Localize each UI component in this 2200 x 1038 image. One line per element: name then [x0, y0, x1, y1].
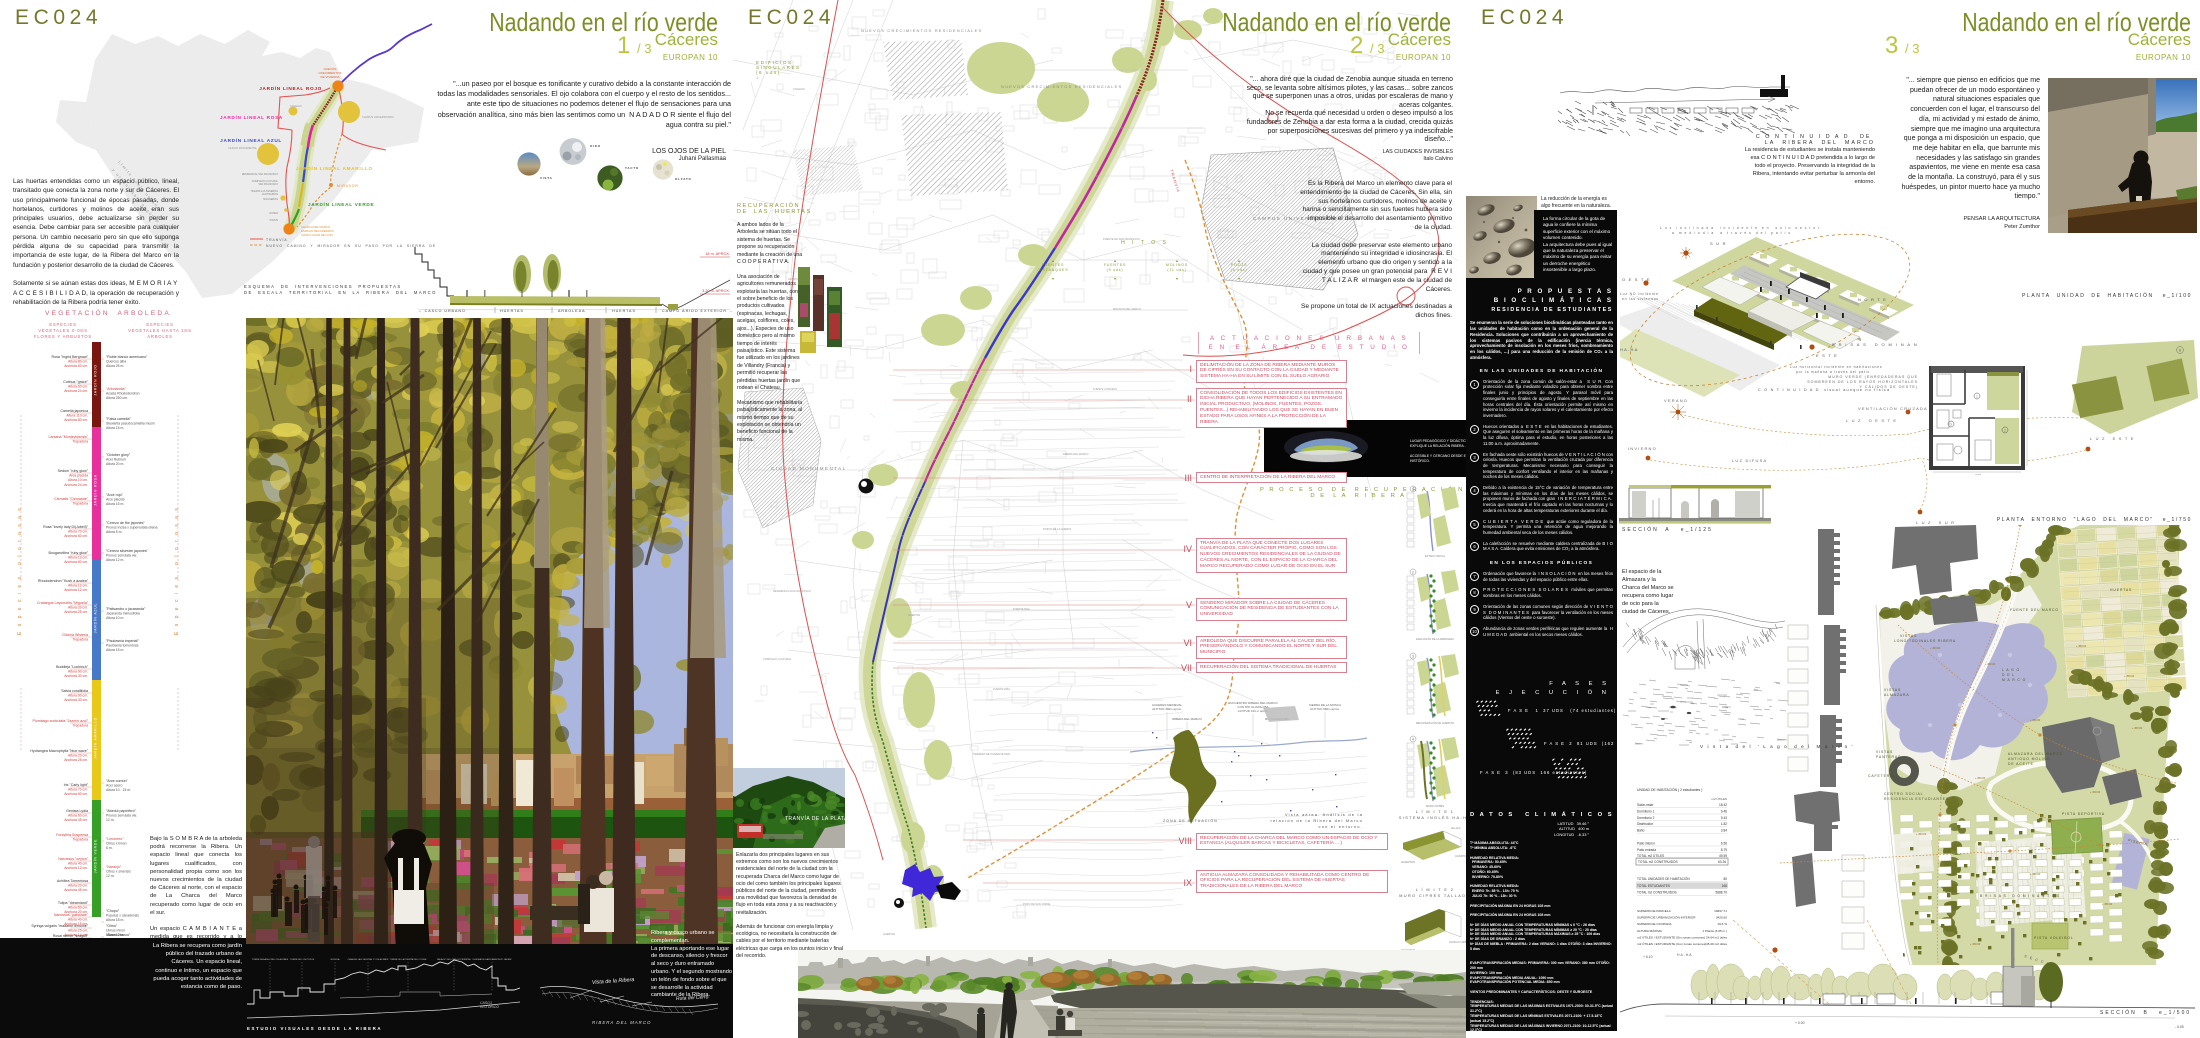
svg-text:Anchura 25 cm.: Anchura 25 cm.	[64, 610, 88, 614]
svg-text:Anchura 45 cm.: Anchura 45 cm.	[64, 888, 88, 892]
svg-text:JARDÍN LINEAL AZUL: JARDÍN LINEAL AZUL	[220, 136, 282, 143]
svg-text:"October glory": "October glory"	[106, 453, 131, 457]
svg-text:JARDÍN LINEAL AMARILLO: JARDÍN LINEAL AMARILLO	[296, 164, 373, 171]
svg-text:"Falsa camelia": "Falsa camelia"	[106, 417, 131, 421]
svg-text:Trepadora: Trepadora	[72, 502, 88, 506]
svg-text:TRANVÍA: TRANVÍA	[1169, 169, 1181, 194]
svg-text:CAFETERÍA: CAFETERÍA	[1868, 774, 1895, 778]
svg-text:Anchura 45 cm.: Anchura 45 cm.	[64, 818, 88, 822]
svg-text:VERANO: VERANO	[1664, 398, 1688, 403]
svg-text:TRANVÍA DE LA PLATA: TRANVÍA DE LA PLATA	[785, 815, 845, 822]
svg-text:9.43: 9.43	[1721, 816, 1727, 820]
svg-text:Vista aérea. Análisis de la: Vista aérea. Análisis de la	[1285, 812, 1363, 817]
svg-text:EJECUCIÓN DE LA ARBOLEDA: EJECUCIÓN DE LA ARBOLEDA	[1416, 636, 1454, 641]
svg-text:RESIDENCIA SAN FRANCISCO: RESIDENCIA SAN FRANCISCO	[773, 589, 811, 593]
svg-text:HA-HA: HA-HA	[1677, 953, 1693, 957]
svg-text:ESTADO INICIAL: ESTADO INICIAL	[1425, 554, 1446, 558]
svg-text:"Abedul papírifero": "Abedul papírifero"	[106, 809, 137, 813]
svg-text:+ 450.00: + 450.00	[2030, 872, 2041, 876]
svg-text:con el entorno.: con el entorno.	[1319, 824, 1363, 829]
svg-text:NUEVOS CRECIMIENTOS RESIDENC: NUEVOS CRECIMIENTOS RESIDENCIALES	[861, 28, 982, 33]
svg-text:D E L: D E L	[2002, 673, 2015, 677]
svg-text:Altura 5 m.: Altura 5 m.	[106, 530, 122, 534]
svg-text:RESIDENCIA ESTUDIANTES: RESIDENCIA ESTUDIANTES	[1884, 797, 1949, 801]
svg-text:BODUJA: BODUJA	[331, 958, 340, 961]
svg-text:5688.70: 5688.70	[1715, 891, 1727, 895]
svg-text:▼: ▼	[1113, 277, 1117, 281]
svg-text:Clematis "Clematide": Clematis "Clematide"	[54, 497, 88, 501]
svg-text:HA-HA: HA-HA	[1451, 826, 1460, 830]
svg-text:3425.60: 3425.60	[1716, 916, 1727, 920]
svg-text:RIBERA DEL MARCO: RIBERA DEL MARCO	[1172, 717, 1202, 721]
svg-text:JARDÍN LINEAL VERDE: JARDÍN LINEAL VERDE	[308, 200, 374, 207]
svg-text:Altura 90 cm.: Altura 90 cm.	[68, 670, 88, 674]
svg-text:VEGETALES HASTA 18m: VEGETALES HASTA 18m	[128, 328, 192, 333]
svg-text:Achillea Tomentosa: Achillea Tomentosa	[57, 879, 88, 883]
svg-text:Stewartia pseudocamellia mosin: Stewartia pseudocamellia mosin	[106, 422, 155, 426]
svg-text:ESPECIES: ESPECIES	[49, 322, 76, 327]
svg-text:"Arbolandia": "Arbolandia"	[106, 387, 126, 391]
svg-text:Prunus incisa x supervulata ol: Prunus incisa x supervulata oliana	[106, 526, 158, 530]
svg-text:+ 450.00: + 450.00	[2090, 790, 2101, 794]
svg-text:Patio entrada: Patio entrada	[1637, 848, 1656, 852]
svg-text:LUZ DIFUSA: LUZ DIFUSA	[1732, 458, 1767, 463]
svg-text:(5 uds): (5 uds)	[1231, 268, 1248, 272]
svg-text:Anchura 60 cm.: Anchura 60 cm.	[64, 534, 88, 538]
svg-text:EXPLIQUE LA RELACIÓN RIBERA -: EXPLIQUE LA RELACIÓN RIBERA - CIUDAD.	[1410, 443, 1470, 448]
svg-text:Ulmus minor: Ulmus minor	[106, 929, 126, 933]
svg-text:TORRE DE LOS POZOS: TORRE DE LOS POZOS	[290, 959, 315, 961]
svg-text:1.82: 1.82	[1721, 822, 1727, 826]
svg-text:Acer Rubrum: Acer Rubrum	[106, 458, 126, 462]
svg-text:RIBERA DEL MARCO: RIBERA DEL MARCO	[1063, 452, 1089, 456]
svg-text:Altura 40 cm.: Altura 40 cm.	[68, 918, 88, 922]
svg-text:Rhododendron "Kush a azalea": Rhododendron "Kush a azalea"	[38, 579, 89, 583]
svg-text:RONDA: RONDA	[269, 212, 278, 215]
svg-text:Prunus serrulata var.: Prunus serrulata var.	[106, 554, 137, 558]
svg-text:JARDÍN AMARILLO: JARDÍN AMARILLO	[94, 717, 98, 759]
svg-text:Altura 90 cm.: Altura 90 cm.	[68, 694, 88, 698]
svg-text:PISTA DEPORTIVA: PISTA DEPORTIVA	[2062, 812, 2105, 816]
svg-text:+ 0.00: + 0.00	[1795, 1021, 1805, 1025]
svg-text:Altura 25 m.: Altura 25 m.	[106, 364, 124, 368]
svg-text:CIUDAD MONUMENTAL: CIUDAD MONUMENTAL	[771, 466, 847, 471]
svg-text:+ 450.00: + 450.00	[1975, 776, 1986, 780]
svg-text:6 m.: 6 m.	[106, 846, 113, 850]
svg-text:H I T O S: H I T O S	[1121, 240, 1169, 246]
svg-text:TORRE DESALA II DE LOS ALJIBES: TORRE DESALA II DE LOS ALJIBES	[252, 958, 289, 961]
svg-text:Dormitorio 2: Dormitorio 2	[1637, 816, 1655, 820]
svg-text:L U Z O E S T E: L U Z O E S T E	[1846, 418, 1897, 423]
svg-text:Altura 12 cm.: Altura 12 cm.	[68, 556, 88, 560]
svg-text:TOTAL m2 CONSTRUIDOS: TOTAL m2 CONSTRUIDOS	[1637, 891, 1677, 895]
svg-text:CURTIDURÍAS: CURTIDURÍAS	[262, 193, 279, 196]
svg-text:▲: ▲	[1237, 259, 1241, 263]
svg-text:ANTIGUO MOLINO: ANTIGUO MOLINO	[2008, 757, 2050, 761]
svg-text:INVIERNO: INVIERNO	[1628, 446, 1657, 451]
svg-text:Trepadora: Trepadora	[72, 638, 88, 642]
svg-text:COMO LUGAR DE OCIO: COMO LUGAR DE OCIO	[301, 233, 334, 237]
svg-text:Altura 80 cm.: Altura 80 cm.	[68, 360, 88, 364]
svg-text:▲: ▲	[1113, 259, 1117, 263]
svg-text:FUENTE FRÍA: FUENTE FRÍA	[993, 687, 1010, 691]
svg-text:PANTERAS: PANTERAS	[1876, 755, 1901, 759]
svg-text:FLORES Y ARBUSTOS: FLORES Y ARBUSTOS	[34, 334, 92, 339]
svg-text:Arce placido: Arce placido	[106, 498, 125, 502]
svg-text:Narcissus "pastorale": Narcissus "pastorale"	[54, 913, 89, 917]
svg-text:HISTÓRICO.: HISTÓRICO.	[1410, 458, 1430, 463]
svg-text:Altura 15 m.: Altura 15 m.	[106, 502, 124, 506]
svg-text:8: 8	[2179, 349, 2181, 353]
svg-text:a m e d i o d í a a t r a: a m e d i o d í a a t r a v é s d e l p …	[1672, 231, 1791, 235]
svg-text:Altura 250 cm.: Altura 250 cm.	[106, 396, 128, 400]
svg-text:3.84: 3.84	[1721, 829, 1727, 833]
svg-text:+ 450.00: + 450.00	[2076, 644, 2087, 648]
svg-text:18.42: 18.42	[1719, 803, 1727, 807]
svg-text:Hydrangea Macrophylla "blue wa: Hydrangea Macrophylla "blue wave"	[30, 749, 88, 753]
svg-text:LUGAR PEDAGÓGICO Y DIDÁCTICO D: LUGAR PEDAGÓGICO Y DIDÁCTICO DONDE SE	[1410, 438, 1470, 443]
svg-text:F A S E 3 (83 UDS 166 estud: F A S E 3 (83 UDS 166 estudiantes)	[1480, 770, 1587, 775]
svg-text:Tulipa "dreamland": Tulipa "dreamland"	[58, 901, 89, 905]
svg-text:←←: ←←	[1597, 98, 1603, 102]
svg-text:Altura 15 m.: Altura 15 m.	[106, 648, 124, 652]
svg-text:▲: ▲	[1051, 259, 1055, 263]
svg-text:L u z i n c l i n a d a i n: L u z i n c l i n a d a i n c i d e n t …	[1660, 226, 1820, 230]
svg-text:18297.71: 18297.71	[1714, 909, 1727, 913]
svg-text:- 6.05: - 6.05	[2175, 1025, 2184, 1029]
svg-text:+ 450.00: + 450.00	[2124, 674, 2135, 678]
svg-text:3: 3	[1412, 654, 1414, 658]
svg-text:166: 166	[1722, 884, 1728, 888]
svg-text:E s p e c i e s o l o r o s: E s p e c i e s o l o r o s a s	[17, 506, 23, 635]
svg-text:Anchura 30 cm.: Anchura 30 cm.	[64, 698, 88, 702]
svg-text:M A R C O: M A R C O	[2002, 678, 2026, 682]
svg-text:Altura 20 m.: Altura 20 m.	[106, 462, 124, 466]
svg-text:JARDÍN ROJO: JARDÍN ROJO	[94, 364, 98, 395]
svg-text:SAN FRANCISCO: SAN FRANCISCO	[258, 183, 278, 186]
svg-text:MOLINOS DEL MARCO: MOLINOS DEL MARCO	[1113, 307, 1141, 311]
svg-text:JARDÍN LINEAL ROJO: JARDÍN LINEAL ROJO	[259, 84, 322, 91]
svg-text:Salvia corallifolia: Salvia corallifolia	[61, 689, 88, 693]
svg-text:Jacaranda mimosifolia: Jacaranda mimosifolia	[106, 612, 140, 616]
svg-text:Rosa "Ingrid Bergman": Rosa "Ingrid Bergman"	[51, 355, 88, 359]
svg-text:"Álamo blanco": "Álamo blanco"	[106, 933, 131, 937]
svg-text:"Paulownia imperial": "Paulownia imperial"	[106, 639, 139, 643]
svg-text:DE ACEITE: DE ACEITE	[2008, 762, 2034, 766]
svg-text:"Palisandro o jacaranda": "Palisandro o jacaranda"	[106, 607, 146, 611]
svg-text:+ 6.10: + 6.10	[1643, 955, 1653, 959]
svg-text:FUENTE CONCEJO: FUENTE CONCEJO	[1093, 387, 1117, 391]
svg-text:E s p e c i e s o l o r o s: E s p e c i e s o l o r o s a s	[174, 506, 180, 635]
svg-text:N O R T E: N O R T E	[1858, 297, 1887, 302]
svg-text:2: 2	[1412, 570, 1414, 574]
svg-text:"Roble blanco americano": "Roble blanco americano"	[106, 355, 148, 359]
svg-text:Altura 12 cm.: Altura 12 cm.	[68, 584, 88, 588]
svg-text:VISTAS: VISTAS	[1876, 750, 1893, 754]
svg-text:TOTAL UNIDADES DE HABITACIÓN: TOTAL UNIDADES DE HABITACIÓN	[1637, 876, 1690, 881]
svg-text:COLEGIO: COLEGIO	[793, 87, 805, 91]
svg-text:IGLESIA DE SAN FRANCISCO JAVIE: IGLESIA DE SAN FRANCISCO JAVIER	[473, 958, 512, 961]
svg-text:"Arce común": "Arce común"	[106, 779, 128, 783]
svg-text:Altura 20 cm.: Altura 20 cm.	[68, 754, 88, 758]
svg-text:63.26: 63.26	[1718, 860, 1726, 864]
svg-text:ALMAZARA DEL MARCO: ALMAZARA DEL MARCO	[2008, 752, 2063, 756]
svg-text:Rosa "lovely lady Di(Jubell)": Rosa "lovely lady Di(Jubell)"	[43, 525, 89, 529]
svg-text:B R I S A S D O M I N A N T: B R I S A S D O M I N A N T E S D E O E …	[1832, 342, 1920, 347]
svg-text:Altura 40 cm.: Altura 40 cm.	[68, 862, 88, 866]
svg-text:L Í M I T E 1: L Í M I T E 1	[1416, 810, 1455, 814]
svg-text:Syringa vulgaris "madame lemoi: Syringa vulgaris "madame lemoine"	[31, 924, 88, 928]
svg-text:ESPECIES: ESPECIES	[146, 322, 173, 327]
svg-text:+ 450.00: + 450.00	[1930, 646, 1941, 650]
svg-text:ALMAZARA: ALMAZARA	[1884, 693, 1909, 697]
svg-text:VISTAS: VISTAS	[1884, 688, 1901, 692]
svg-text:VISTA: VISTA	[540, 176, 553, 180]
svg-text:Glicinia Wisteria: Glicinia Wisteria	[62, 633, 88, 637]
svg-text:Acer acero: Acer acero	[106, 784, 123, 788]
svg-text:CAMPUS UNIVERSITARIO: CAMPUS UNIVERSITARIO	[362, 115, 394, 119]
svg-text:OIDO: OIDO	[590, 144, 601, 148]
svg-text:POZOS: POZOS	[1231, 263, 1248, 267]
svg-text:Anchura 24 cm.: Anchura 24 cm.	[64, 389, 88, 393]
svg-text:(11 uds): (11 uds)	[1167, 268, 1186, 272]
svg-text:O E S T E: O E S T E	[1622, 277, 1651, 282]
svg-text:9.46: 9.46	[1721, 809, 1727, 813]
svg-text:Altura 10 cm.: Altura 10 cm.	[68, 478, 88, 482]
svg-text:Salón-estar: Salón-estar	[1637, 803, 1654, 807]
svg-text:m2 ÚTILES: m2 ÚTILES	[1711, 796, 1727, 801]
svg-text:ALTITUD 560m aprox.: ALTITUD 560m aprox.	[1310, 707, 1340, 711]
svg-text:Anchura 80 cm.: Anchura 80 cm.	[64, 418, 88, 422]
svg-text:Camelia japonica: Camelia japonica	[60, 409, 88, 413]
svg-text:CASA DE LAS VELETAS Y LOS ALJI: CASA DE LAS VELETAS Y LOS ALJIBES	[348, 958, 389, 961]
svg-text:POZOS: POZOS	[270, 219, 279, 222]
svg-text:HISTÓRICO: HISTÓRICO	[480, 1004, 499, 1009]
svg-text:en las viviendas: en las viviendas	[1622, 297, 1659, 301]
svg-text:Anchura 60 cm.: Anchura 60 cm.	[64, 792, 88, 796]
svg-text:JARDÍN ROSA: JARDÍN ROSA	[94, 474, 98, 506]
svg-text:Luz NO incidente: Luz NO incidente	[1620, 292, 1659, 296]
svg-text:Altura 60 cm.: Altura 60 cm.	[68, 385, 88, 389]
svg-text:HUERTAS: HUERTAS	[1401, 860, 1415, 864]
svg-text:Baño: Baño	[1637, 829, 1645, 833]
svg-text:L A G O: L A G O	[2002, 668, 2020, 672]
svg-text:"Olmo": "Olmo"	[106, 924, 118, 928]
svg-text:FUENTES: FUENTES	[1042, 263, 1064, 267]
svg-text:HUERTAS: HUERTAS	[908, 613, 920, 617]
svg-text:Trepadora: Trepadora	[72, 724, 88, 728]
svg-text:12 m.: 12 m.	[106, 874, 115, 878]
svg-text:8.79: 8.79	[1721, 848, 1727, 852]
svg-text:Anchura 12 cm.: Anchura 12 cm.	[64, 866, 88, 870]
svg-text:HUERTAS: HUERTAS	[2110, 588, 2132, 592]
svg-text:NUEVOS CRECIMIENTOS RESIDENC: NUEVOS CRECIMIENTOS RESIDENCIALES	[1001, 84, 1122, 89]
svg-text:Altura 25 cm.: Altura 25 cm.	[68, 929, 88, 933]
svg-text:UNIDAD DE HABITACIÓN ( 2 estu: UNIDAD DE HABITACIÓN ( 2 estudiantes )	[1637, 787, 1702, 792]
svg-text:▼: ▼	[1175, 277, 1179, 281]
svg-text:TERRERA DE PONIENTE MAR: TERRERA DE PONIENTE MAR	[973, 752, 1010, 756]
svg-text:Prunus serrulata var.: Prunus serrulata var.	[106, 814, 137, 818]
svg-text:Altura 110 cm.: Altura 110 cm.	[66, 414, 88, 418]
svg-text:Altura 15 m.: Altura 15 m.	[106, 426, 124, 430]
svg-text:LONGITUDINALES RIBERA: LONGITUDINALES RIBERA	[1894, 639, 1956, 643]
svg-text:S U R: S U R	[1710, 241, 1727, 246]
svg-text:ÁRBOLES: ÁRBOLES	[147, 334, 172, 339]
svg-text:Anchura 30 cm.: Anchura 30 cm.	[64, 674, 88, 678]
svg-text:Vista de la Ribera: Vista de la Ribera	[592, 977, 635, 986]
svg-text:MOLINOS: MOLINOS	[1166, 263, 1188, 267]
svg-text:1: 1	[1412, 487, 1414, 491]
svg-text:HUERTAS: HUERTAS	[883, 932, 895, 936]
svg-text:Bouganvillea "ruby glow": Bouganvillea "ruby glow"	[48, 551, 88, 555]
svg-text:TOTAL ESTUDIANTES: TOTAL ESTUDIANTES	[1637, 884, 1670, 888]
svg-text:ESTUDIO VISUALES DESDE LA RIBE: ESTUDIO VISUALES DESDE LA RIBERA	[247, 1026, 382, 1031]
svg-text:Dormitorio 1: Dormitorio 1	[1637, 809, 1655, 813]
svg-text:Buddleja "Lochinch": Buddleja "Lochinch"	[56, 665, 89, 669]
svg-text:Altura 60 cm.: Altura 60 cm.	[68, 814, 88, 818]
svg-text:TACTO: TACTO	[625, 166, 639, 170]
svg-text:F A S E 2 81 UDS (162 est.): F A S E 2 81 UDS (162 est.)	[1544, 741, 1616, 746]
svg-text:MURO CIPRÉS TALLADO: MURO CIPRÉS TALLADO	[1399, 893, 1470, 898]
svg-text:Altura 70 cm.: Altura 70 cm.	[68, 530, 88, 534]
svg-text:(9 uds): (9 uds)	[1107, 268, 1124, 272]
svg-text:relación de la Ribera del Marc: relación de la Ribera del Marco	[1270, 818, 1363, 823]
svg-text:Iris "Carly light": Iris "Carly light"	[64, 783, 89, 787]
svg-text:PUENTE RIAL: PUENTE RIAL	[1013, 607, 1031, 611]
svg-text:Altura 50 cm.: Altura 50 cm.	[68, 906, 88, 910]
svg-text:"Cerezo de flor japonés": "Cerezo de flor japonés"	[106, 521, 145, 525]
svg-text:Forsythia Suspensa: Forsythia Suspensa	[56, 833, 88, 837]
svg-text:"Limonero": "Limonero"	[106, 837, 124, 841]
svg-text:7.20: 7.20	[1975, 473, 1981, 475]
svg-text:"Chopo": "Chopo"	[106, 909, 120, 913]
svg-text:Quercus alba: Quercus alba	[106, 360, 126, 364]
svg-text:Acacia Rhododendron: Acacia Rhododendron	[106, 392, 140, 396]
svg-text:Citrus x sinensis: Citrus x sinensis	[106, 870, 131, 874]
svg-text:Trepadora: Trepadora	[72, 440, 88, 444]
svg-text:VEGETALES 0-08m: VEGETALES 0-08m	[38, 328, 88, 333]
svg-text:Sedum "ruby glow": Sedum "ruby glow"	[58, 469, 89, 473]
svg-text:+ 450.00: + 450.00	[2132, 726, 2143, 730]
svg-text:+ 450.00: + 450.00	[2030, 718, 2041, 722]
svg-text:MIRADOR: MIRADOR	[337, 184, 359, 188]
svg-text:SUPERFICIE URBANIZACIÓN INTERI: SUPERFICIE URBANIZACIÓN INTERIOR	[1637, 915, 1696, 920]
svg-text:Genista Lydia: Genista Lydia	[66, 809, 88, 813]
svg-text:Citrus x limon: Citrus x limon	[106, 842, 127, 846]
svg-text:Anchura 60 cm.: Anchura 60 cm.	[64, 364, 88, 368]
svg-text:ALTITUD 460m aprox.: ALTITUD 460m aprox.	[1152, 707, 1182, 711]
svg-text:DE VIVIENDA: DE VIVIENDA	[320, 75, 339, 79]
svg-text:4: 4	[1412, 737, 1414, 741]
svg-text:+ 450.00: + 450.00	[1916, 832, 1927, 836]
svg-text:+ 450.00: + 450.00	[2102, 902, 2113, 906]
svg-text:TRANVÍA: TRANVÍA	[266, 238, 288, 242]
svg-text:TORRE DE LA PUERTA DEL COCHE: TORRE DE LA PUERTA DEL COCHE	[390, 958, 427, 961]
svg-text:POZOS DE LA HUERTA: POZOS DE LA HUERTA	[1043, 527, 1072, 531]
svg-text:Altura 12 m.: Altura 12 m.	[106, 558, 124, 562]
svg-text:CIUDAD MONUMENTAL: CIUDAD MONUMENTAL	[228, 146, 257, 150]
svg-text:▼: ▼	[1237, 277, 1241, 281]
svg-text:ZONA DE ACTUACIÓN: ZONA DE ACTUACIÓN	[1163, 818, 1218, 823]
svg-text:Anchura 25 cm.: Anchura 25 cm.	[64, 758, 88, 762]
svg-text:PALACIO DE LORA OCCIDENTAL: PALACIO DE LORA OCCIDENTAL	[437, 958, 472, 961]
svg-text:12 m.: 12 m.	[106, 818, 115, 822]
svg-text:RIBERA DEL MARCO: RIBERA DEL MARCO	[592, 1020, 651, 1025]
svg-text:80: 80	[1723, 877, 1727, 881]
svg-text:RESIDENCIAL SAN FRANCISCO: RESIDENCIAL SAN FRANCISCO	[242, 173, 278, 176]
svg-text:VENTILACIÓN CRUZADA: VENTILACIÓN CRUZADA	[1858, 406, 1928, 411]
svg-text:▼: ▼	[1051, 277, 1055, 281]
svg-text:Paulownia tomentosa: Paulownia tomentosa	[106, 644, 139, 648]
svg-text:VISTAS: VISTAS	[1900, 634, 1917, 638]
svg-text:JARDÍN AZUL: JARDÍN AZUL	[94, 603, 98, 633]
svg-text:L U Z E S T E: L U Z E S T E	[2090, 436, 2135, 441]
svg-text:Anchura 24 cm.: Anchura 24 cm.	[64, 483, 88, 487]
svg-text:JARDÍN VERDE: JARDÍN VERDE	[94, 839, 98, 873]
svg-text:SUPERFICIE PARCELA: SUPERFICIE PARCELA	[1637, 909, 1672, 913]
svg-text:Altura 18 m.: Altura 18 m.	[106, 918, 124, 922]
svg-text:▲: ▲	[1175, 259, 1179, 263]
svg-text:COLEGIO: COLEGIO	[290, 104, 302, 108]
svg-text:Plumbago auriculata "Jazmín az: Plumbago auriculata "Jazmín azul"	[33, 719, 89, 723]
svg-text:Patio interior: Patio interior	[1637, 841, 1656, 845]
svg-text:FUENTES: FUENTES	[1104, 263, 1126, 267]
svg-text:Cotinus "grace": Cotinus "grace"	[63, 380, 88, 384]
svg-text:Altura 20 cm.: Altura 20 cm.	[68, 884, 88, 888]
svg-text:Altura 70 cm.: Altura 70 cm.	[68, 788, 88, 792]
svg-text:+ 450.00: + 450.00	[1985, 662, 1996, 666]
svg-text:"Arce rojo": "Arce rojo"	[106, 493, 124, 497]
svg-text:Narcissus "ceylon": Narcissus "ceylon"	[58, 857, 88, 861]
svg-text:/ESTANQUES: /ESTANQUES	[1038, 268, 1069, 272]
svg-text:Anchura 60 cm.: Anchura 60 cm.	[64, 560, 88, 564]
svg-text:Anchura 12 cm.: Anchura 12 cm.	[64, 588, 88, 592]
svg-text:Distribuidor: Distribuidor	[1637, 822, 1654, 826]
svg-text:MOLINERÍAS: MOLINERÍAS	[263, 198, 278, 201]
svg-text:B R I S A S D O M I N A N T: B R I S A S D O M I N A N T E S	[1980, 894, 2060, 898]
svg-text:Area placida: Area placida	[69, 474, 88, 478]
svg-text:F A S E 1 37 UDS (74 estu: F A S E 1 37 UDS (74 estudiantes)	[1508, 708, 1616, 713]
svg-text:CENTRO SOCIAL: CENTRO SOCIAL	[1884, 792, 1923, 796]
svg-text:Lantana "Montevidensis": Lantana "Montevidensis"	[48, 435, 88, 439]
svg-text:L Í M I T E 2: L Í M I T E 2	[1416, 888, 1455, 892]
svg-text:COMPLEJO CULTURAL: COMPLEJO CULTURAL	[763, 657, 792, 661]
svg-text:Altura 10 m.: Altura 10 m.	[106, 616, 124, 620]
svg-text:TOTAL m2 CONSTRUIDOS: TOTAL m2 CONSTRUIDOS	[1638, 860, 1678, 864]
svg-text:"Cerezo silvestre japonés": "Cerezo silvestre japonés"	[106, 549, 149, 553]
svg-text:JARDÍN LINEAL ROSA: JARDÍN LINEAL ROSA	[220, 113, 283, 120]
svg-text:Trepadora: Trepadora	[72, 838, 88, 842]
svg-text:Altura 20 cm.: Altura 20 cm.	[68, 606, 88, 610]
svg-text:"Naranjo": "Naranjo"	[106, 865, 122, 869]
svg-text:Populus x canadensis: Populus x canadensis	[106, 914, 139, 918]
svg-text:18 m. APROX.: 18 m. APROX.	[705, 252, 730, 256]
svg-text:TOTAL m2 ÚTILES: TOTAL m2 ÚTILES	[1637, 853, 1664, 858]
svg-text:3.20 m. APROX.: 3.20 m. APROX.	[702, 289, 730, 293]
svg-text:RECUPERACIÓN DE HUERTAS: RECUPERACIÓN DE HUERTAS	[1416, 720, 1454, 725]
svg-text:49.59: 49.59	[1719, 854, 1727, 858]
svg-text:6.56: 6.56	[1721, 841, 1727, 845]
svg-text:SISTEMA INGLÉS HA-HA: SISTEMA INGLÉS HA-HA	[1399, 815, 1470, 820]
svg-text:OLFATO: OLFATO	[675, 177, 692, 181]
svg-text:Altura 10 - 15 m.: Altura 10 - 15 m.	[106, 788, 131, 792]
svg-text:ACCESIBLE Y CERCANO DESDE EL C: ACCESIBLE Y CERCANO DESDE EL CASCO	[1410, 454, 1470, 458]
svg-text:Crataegus Laysmoths "Miguela": Crataegus Laysmoths "Miguela"	[37, 601, 89, 605]
svg-text:FUENTE DEL MARCO: FUENTE DEL MARCO	[2010, 608, 2059, 612]
